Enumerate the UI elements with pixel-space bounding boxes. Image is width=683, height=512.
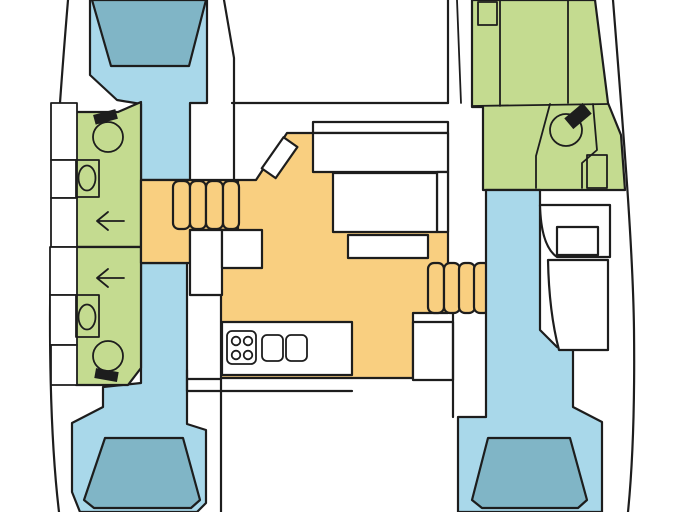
step-ladder-icon	[223, 181, 239, 229]
port-aft-bathroom	[76, 247, 141, 385]
cabinet	[190, 230, 222, 295]
vanity-cabinet	[548, 260, 608, 350]
locker	[50, 295, 77, 345]
aft-bench	[348, 235, 428, 258]
step-ladder-icon	[428, 263, 444, 313]
port-forward-bathroom	[76, 102, 141, 247]
port-forward-berth	[92, 0, 206, 66]
sink-basin-icon	[262, 335, 283, 361]
floorplan-svg	[0, 0, 683, 512]
port-side-lockers	[50, 103, 77, 385]
sink-basin-icon	[286, 335, 307, 361]
saloon-table	[333, 173, 437, 232]
front-seat-back	[313, 122, 448, 133]
step-ladder-icon	[206, 181, 223, 229]
locker	[51, 345, 77, 385]
port-steps	[173, 181, 239, 229]
floorplan-canvas	[0, 0, 683, 512]
galley-side-counter	[413, 322, 453, 380]
galley	[222, 322, 453, 380]
locker	[51, 198, 77, 247]
locker	[51, 103, 77, 160]
starboard-aft-berth	[472, 438, 587, 508]
front-bench	[313, 133, 448, 172]
starboard-steps	[428, 263, 490, 313]
port-aft-berth	[84, 438, 200, 508]
step-ladder-icon	[190, 181, 206, 229]
locker	[51, 160, 77, 198]
step-ladder-icon	[444, 263, 460, 313]
desk-seat	[557, 227, 598, 255]
step-ladder-icon	[459, 263, 475, 313]
cabinet	[222, 230, 262, 268]
step-ladder-icon	[173, 181, 190, 229]
side-counter-strip	[437, 172, 448, 232]
locker	[50, 247, 77, 295]
